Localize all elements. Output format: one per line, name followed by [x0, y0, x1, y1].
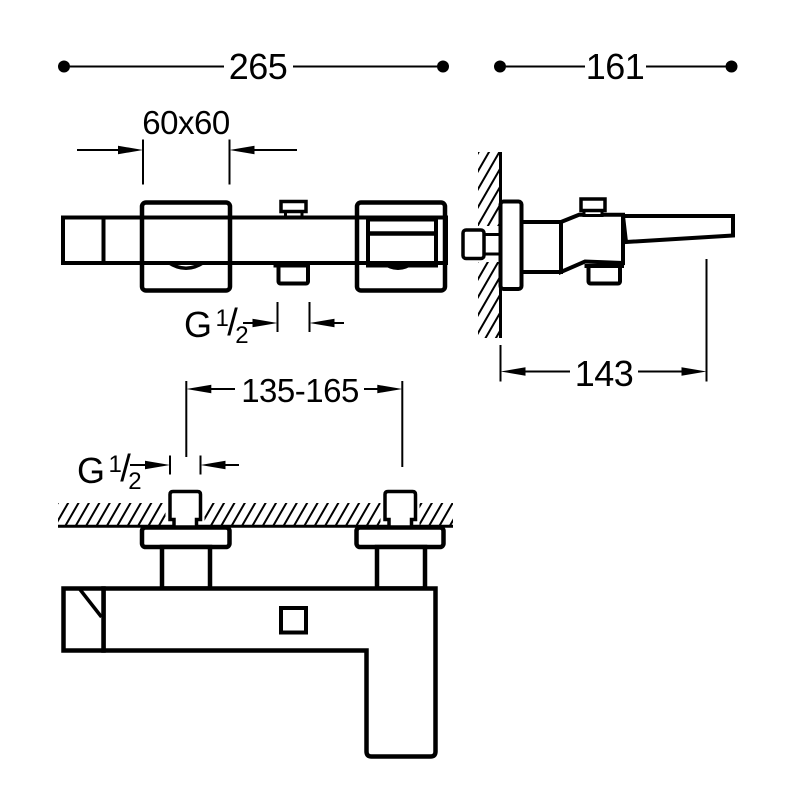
thread-prefix: G	[77, 450, 105, 491]
dim-total-projection-label: 161	[586, 46, 645, 87]
handle-top-view	[64, 589, 104, 651]
drawing-page: 265 161 60x60	[0, 0, 800, 800]
thread-prefix: G	[184, 304, 212, 345]
spout-side	[623, 216, 733, 242]
pipe-union-neck-side	[484, 235, 501, 255]
dim-total-projection: 161	[494, 46, 738, 87]
front-view	[63, 202, 446, 291]
arrowhead	[145, 461, 170, 469]
arrowhead	[253, 319, 278, 327]
dim-dot	[726, 61, 738, 73]
thread-denominator: 2	[128, 468, 141, 495]
arrowhead	[118, 146, 143, 154]
dim-dot	[437, 61, 449, 73]
side-view	[461, 152, 733, 338]
dim-escutcheon-size-label: 60x60	[142, 104, 230, 141]
dim-outlet-thread-label: G 1 / 2	[184, 302, 248, 349]
escutcheon-side	[501, 202, 522, 290]
dim-overall-width: 265	[58, 46, 449, 87]
body-front	[63, 218, 446, 264]
body-top-view	[104, 589, 436, 757]
dim-inlet-thread-label: G 1 / 2	[77, 448, 141, 495]
top-view	[58, 492, 453, 757]
technical-drawing-canvas: 265 161 60x60	[0, 0, 800, 800]
shower-outlet-front	[279, 266, 309, 284]
diverter-knob-front	[281, 202, 306, 212]
cartridge-side	[561, 215, 623, 272]
dim-inlet-spacing-label: 135-165	[241, 372, 359, 409]
union-body-right	[377, 547, 425, 589]
dim-outlet-thread: G 1 / 2	[184, 302, 344, 349]
thread-denominator: 2	[235, 322, 248, 349]
diverter-top-view	[281, 608, 306, 633]
shower-outlet-side	[589, 266, 621, 284]
dim-dot	[494, 61, 506, 73]
diverter-knob-side	[581, 199, 605, 211]
union-flange-left	[142, 528, 230, 548]
inlet-nipple-right	[385, 492, 416, 527]
union-flange-right	[357, 528, 444, 548]
inlet-nipple-left	[170, 492, 201, 527]
dim-spout-projection-label: 143	[575, 353, 634, 394]
dim-inlet-thread: G 1 / 2	[77, 448, 239, 495]
valve-body-side	[522, 222, 562, 272]
union-body-left	[162, 547, 210, 589]
dim-dot	[58, 61, 70, 73]
dim-inlet-spacing: 135-165	[186, 372, 402, 467]
dim-escutcheon-size: 60x60	[77, 104, 297, 185]
pipe-union-nut-side	[463, 230, 484, 259]
arrowhead	[377, 385, 402, 393]
arrowhead	[682, 367, 707, 375]
dim-overall-width-label: 265	[229, 46, 288, 87]
